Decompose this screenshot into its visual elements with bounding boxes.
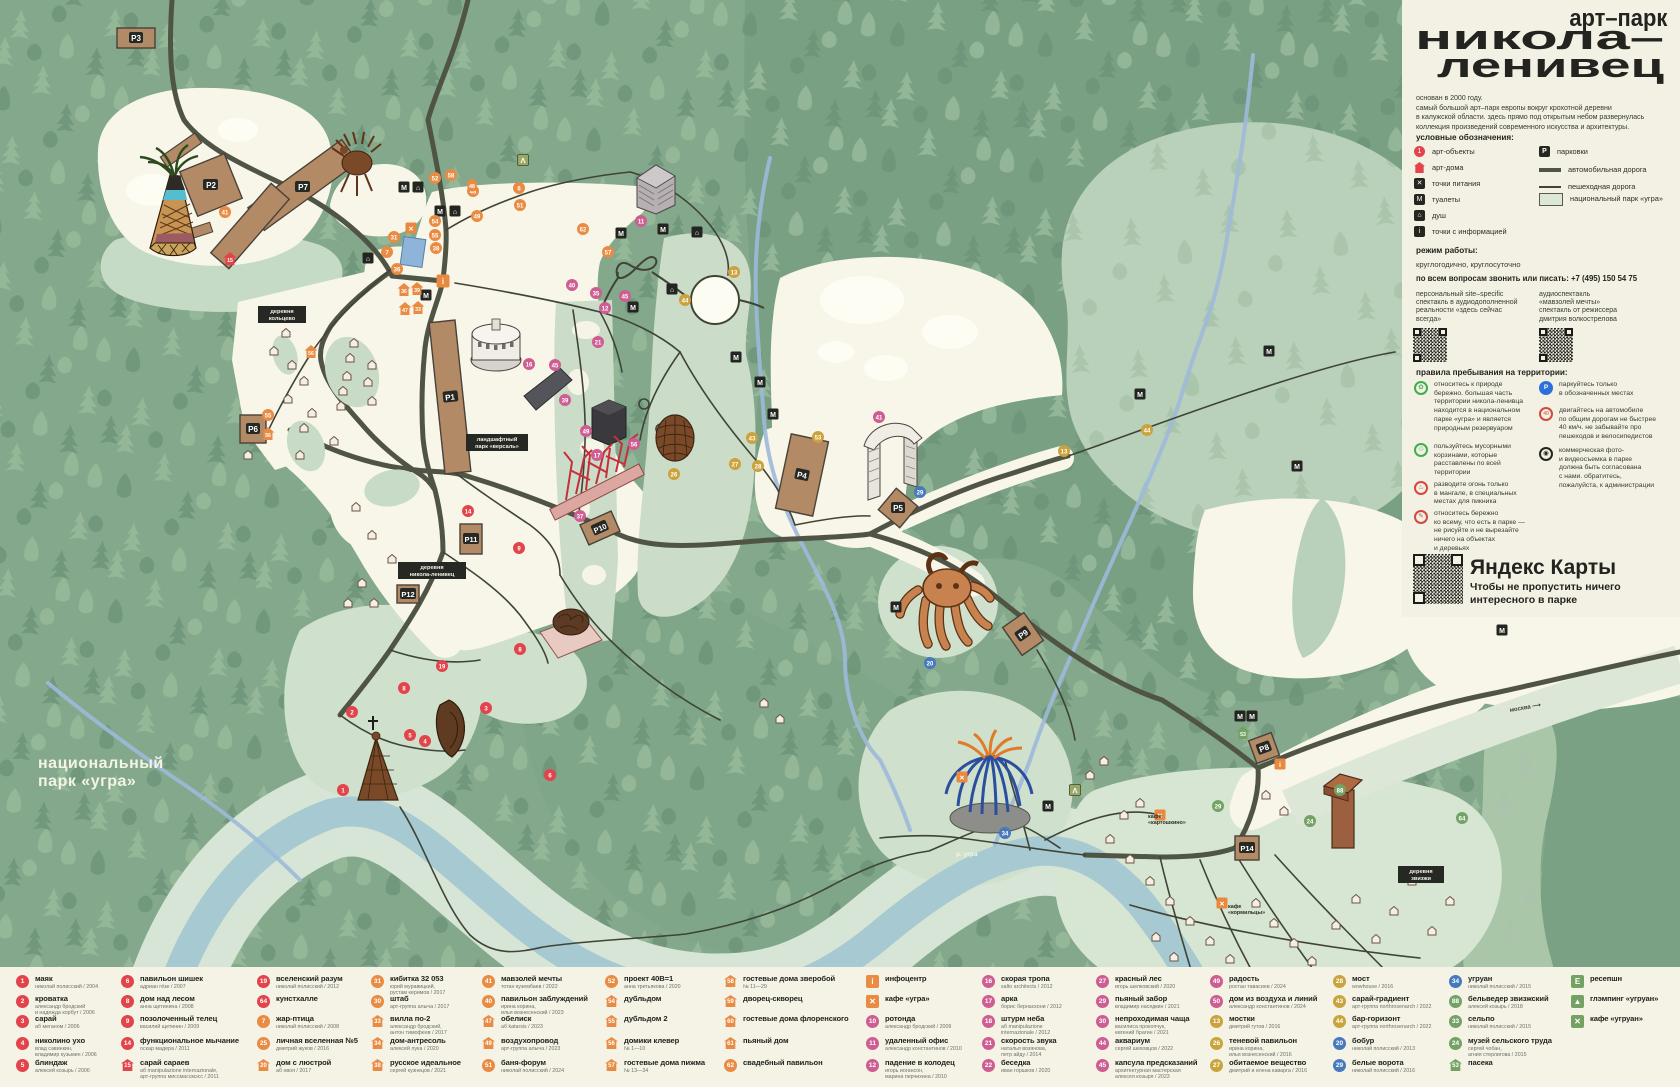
svg-text:ландшафтный: ландшафтный <box>477 436 518 443</box>
svg-text:34: 34 <box>1002 831 1009 837</box>
svg-text:P7: P7 <box>298 183 308 192</box>
svg-text:парк «версаль»: парк «версаль» <box>475 444 519 450</box>
svg-text:«кормильцы»: «кормильцы» <box>1228 910 1265 916</box>
svg-text:56: 56 <box>265 433 271 439</box>
svg-text:⌂: ⌂ <box>416 185 420 192</box>
svg-text:62: 62 <box>580 227 587 233</box>
svg-text:45: 45 <box>552 363 559 369</box>
svg-text:i: i <box>1279 762 1281 769</box>
svg-text:P6: P6 <box>248 425 258 434</box>
svg-text:28: 28 <box>755 464 762 470</box>
svg-text:деревня: деревня <box>270 309 293 315</box>
svg-text:P14: P14 <box>1240 844 1254 853</box>
svg-text:19: 19 <box>439 664 446 670</box>
svg-text:58: 58 <box>448 173 455 179</box>
svg-text:13: 13 <box>1061 449 1068 455</box>
svg-text:12: 12 <box>602 306 609 312</box>
svg-text:M: M <box>893 605 899 612</box>
svg-text:⌂: ⌂ <box>670 287 674 294</box>
svg-text:21: 21 <box>595 340 602 346</box>
svg-text:M: M <box>401 185 407 192</box>
svg-text:M: M <box>757 380 763 387</box>
svg-text:P5: P5 <box>893 504 903 513</box>
svg-text:Λ: Λ <box>1072 786 1077 795</box>
svg-text:39: 39 <box>414 288 420 294</box>
svg-text:P12: P12 <box>401 590 414 599</box>
svg-text:41: 41 <box>876 415 883 421</box>
svg-text:кольцево: кольцево <box>269 316 296 322</box>
svg-text:64: 64 <box>1459 816 1466 822</box>
svg-text:M: M <box>630 305 636 312</box>
svg-text:i: i <box>442 277 444 286</box>
svg-text:M: M <box>1137 392 1143 399</box>
svg-text:P1: P1 <box>445 392 456 402</box>
svg-text:кафе: кафе <box>1148 813 1161 820</box>
svg-text:M: M <box>1499 628 1505 635</box>
svg-text:31: 31 <box>391 235 398 241</box>
svg-text:⌂: ⌂ <box>453 209 457 216</box>
svg-text:M: M <box>1266 349 1272 356</box>
svg-text:P11: P11 <box>465 535 478 544</box>
svg-text:20: 20 <box>927 661 934 667</box>
svg-text:29: 29 <box>917 490 924 496</box>
svg-text:M: M <box>1237 714 1243 721</box>
svg-text:36: 36 <box>394 267 401 273</box>
svg-text:национальный: национальный <box>38 755 164 772</box>
svg-text:16: 16 <box>526 362 533 368</box>
svg-text:55: 55 <box>265 413 272 419</box>
svg-text:24: 24 <box>1307 819 1314 825</box>
svg-text:Λ: Λ <box>520 156 525 165</box>
svg-text:52: 52 <box>432 176 439 182</box>
svg-text:33: 33 <box>415 307 421 313</box>
svg-text:«картошкино»: «картошкино» <box>1148 820 1186 826</box>
svg-text:53: 53 <box>1240 732 1246 738</box>
svg-text:M: M <box>660 227 666 234</box>
svg-text:57: 57 <box>605 250 612 256</box>
svg-text:53: 53 <box>815 435 822 441</box>
svg-text:40: 40 <box>569 283 576 289</box>
svg-text:48: 48 <box>469 184 475 190</box>
svg-text:✕: ✕ <box>408 226 414 233</box>
svg-text:M: M <box>1045 804 1051 811</box>
svg-text:P2: P2 <box>206 181 216 190</box>
svg-text:13: 13 <box>731 270 738 276</box>
svg-text:11: 11 <box>638 219 645 225</box>
svg-text:39: 39 <box>562 398 569 404</box>
svg-text:M: M <box>437 209 443 216</box>
svg-text:56: 56 <box>631 442 638 448</box>
svg-text:кафе: кафе <box>1228 903 1241 910</box>
svg-text:44: 44 <box>682 298 689 304</box>
svg-text:49: 49 <box>583 429 590 435</box>
svg-text:M: M <box>423 293 429 300</box>
svg-text:деревня: деревня <box>420 565 443 571</box>
svg-text:15: 15 <box>227 258 233 264</box>
svg-text:парк «угра»: парк «угра» <box>38 773 136 790</box>
svg-text:55: 55 <box>432 233 439 239</box>
svg-text:45: 45 <box>622 294 629 300</box>
svg-text:р. угра: р. угра <box>956 851 978 858</box>
svg-text:M: M <box>618 231 624 238</box>
svg-text:⌂: ⌂ <box>695 230 699 237</box>
svg-text:M: M <box>733 355 739 362</box>
svg-text:14: 14 <box>465 509 472 515</box>
svg-text:P3: P3 <box>131 34 141 43</box>
svg-text:17: 17 <box>594 453 601 459</box>
svg-text:38: 38 <box>433 246 440 252</box>
svg-text:звизжи: звизжи <box>1411 876 1431 882</box>
svg-text:M: M <box>1294 464 1300 471</box>
svg-text:88: 88 <box>1337 788 1344 794</box>
svg-text:деревня: деревня <box>1409 869 1432 875</box>
svg-text:27: 27 <box>732 462 739 468</box>
svg-text:✕: ✕ <box>959 775 965 782</box>
svg-text:M: M <box>770 412 776 419</box>
svg-text:36: 36 <box>401 289 407 295</box>
svg-text:54: 54 <box>432 219 439 225</box>
svg-text:41: 41 <box>222 210 229 216</box>
svg-text:47: 47 <box>402 308 408 314</box>
svg-text:51: 51 <box>517 203 524 209</box>
svg-text:26: 26 <box>671 472 678 478</box>
svg-text:никола-ленивец: никола-ленивец <box>410 572 455 578</box>
svg-text:49: 49 <box>474 214 481 220</box>
svg-text:43: 43 <box>749 436 756 442</box>
svg-text:56: 56 <box>308 351 314 357</box>
svg-text:✕: ✕ <box>1219 901 1225 908</box>
svg-text:⌂: ⌂ <box>366 256 370 263</box>
svg-text:37: 37 <box>577 514 584 520</box>
svg-text:M: M <box>1249 714 1255 721</box>
svg-text:35: 35 <box>593 291 600 297</box>
svg-text:44: 44 <box>1144 428 1151 434</box>
svg-text:29: 29 <box>1215 804 1222 810</box>
